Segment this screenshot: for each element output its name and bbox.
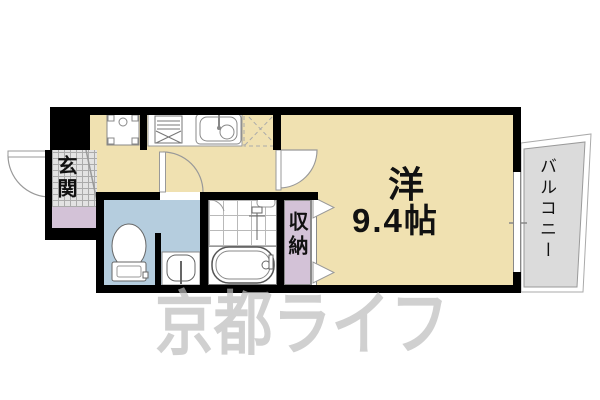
wall-kitchen-stub <box>140 110 147 150</box>
wall-washroom-left <box>96 192 104 293</box>
entrance-label: 玄関 <box>55 155 75 201</box>
storage-label: 収納 <box>286 211 306 259</box>
floorplan-canvas: 玄関 収納 洋 9.4帖 バルコニー 京都ライフ <box>0 0 600 400</box>
room-size-label: 9.4帖 <box>352 194 439 242</box>
wall-right-upper <box>513 107 521 172</box>
wall-entrance-left <box>45 150 52 240</box>
wall-bath-closet-top <box>203 192 318 200</box>
balcony-label: バルコニー <box>538 157 555 262</box>
bathroom-tile-grid <box>209 199 276 247</box>
wall-top <box>50 107 521 115</box>
balcony-window <box>513 172 521 272</box>
kitchen-hall-floor <box>90 112 281 192</box>
wall-kitchen-mainroom <box>273 107 281 150</box>
watermark-text: 京都ライフ <box>155 268 449 369</box>
wall-top-left-block <box>50 107 90 150</box>
wall-washroom-top-left <box>96 192 160 200</box>
entrance-door-arc <box>8 151 50 197</box>
balcony <box>521 134 591 292</box>
